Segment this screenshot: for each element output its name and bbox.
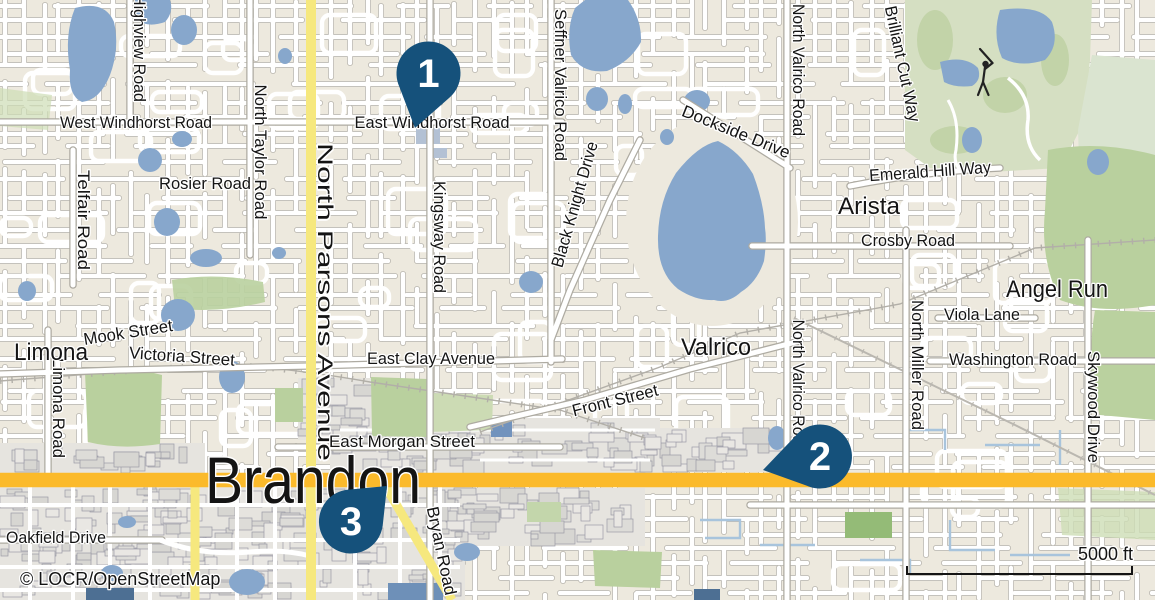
svg-text:Washington Road: Washington Road — [949, 350, 1077, 369]
svg-text:Rosier Road: Rosier Road — [159, 174, 251, 193]
svg-text:© LOCR/OpenStreetMap: © LOCR/OpenStreetMap — [20, 569, 220, 589]
svg-text:North Valrico Roa: North Valrico Roa — [789, 320, 808, 446]
svg-text:Telfair Road: Telfair Road — [74, 170, 93, 270]
svg-text:Valrico: Valrico — [681, 334, 751, 361]
svg-text:North Parsons Avenue: North Parsons Avenue — [313, 143, 336, 461]
svg-text:Seffner Valrico Road: Seffner Valrico Road — [551, 9, 570, 161]
svg-text:Angel Run: Angel Run — [1006, 276, 1108, 303]
svg-text:Limona: Limona — [14, 339, 89, 366]
svg-text:North Miller Road: North Miller Road — [908, 300, 927, 430]
svg-text:Viola Lane: Viola Lane — [944, 305, 1020, 324]
svg-text:1: 1 — [417, 52, 439, 96]
svg-text:Kingsway Road: Kingsway Road — [430, 181, 449, 293]
svg-text:Oakfield Drive: Oakfield Drive — [6, 528, 106, 547]
svg-text:East Windhorst Road: East Windhorst Road — [355, 113, 510, 132]
svg-text:Highview Road: Highview Road — [130, 0, 149, 102]
svg-text:Brandon: Brandon — [205, 443, 421, 517]
svg-text:Crosby Road: Crosby Road — [861, 231, 955, 250]
svg-text:West Windhorst Road: West Windhorst Road — [60, 113, 212, 132]
svg-text:5000 ft: 5000 ft — [1078, 544, 1133, 564]
svg-text:North Valrico Road: North Valrico Road — [789, 4, 808, 136]
svg-text:3: 3 — [340, 500, 362, 544]
svg-text:East Clay Avenue: East Clay Avenue — [367, 349, 495, 368]
svg-text:Limona Road: Limona Road — [49, 358, 68, 458]
svg-text:Skywood Drive: Skywood Drive — [1084, 351, 1103, 463]
svg-text:North Taylor Road: North Taylor Road — [251, 85, 270, 220]
svg-text:2: 2 — [809, 435, 831, 479]
svg-text:Arista: Arista — [838, 193, 901, 220]
